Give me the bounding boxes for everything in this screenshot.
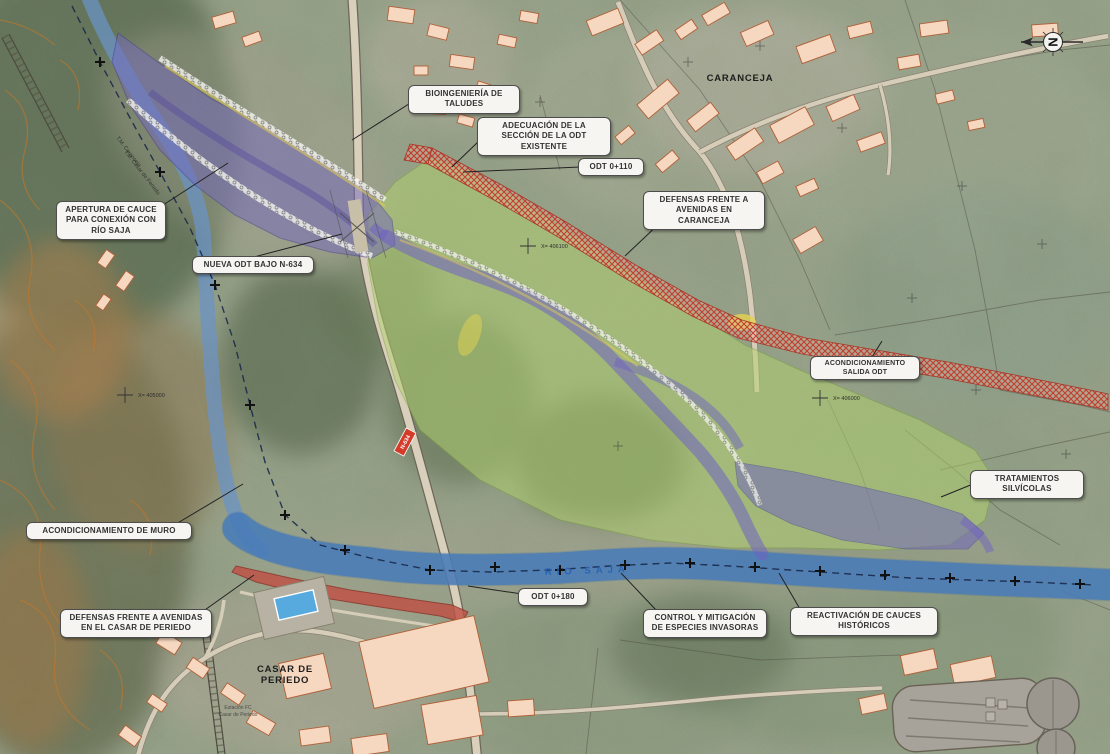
- project-map: X= 405000 X= 406100 X= 406000 T.M. Caran…: [0, 0, 1110, 754]
- callout-reactivacion-cauces: REACTIVACIÓN DE CAUCES HISTÓRICOS: [790, 607, 938, 636]
- callout-nueva-odt-n634: NUEVA ODT BAJO N-634: [192, 256, 314, 274]
- callout-adecuacion-seccion-odt: ADECUACIÓN DE LA SECCIÓN DE LA ODT EXIST…: [477, 117, 611, 156]
- treatment-plant: [891, 677, 1079, 754]
- callout-odt-0-110: ODT 0+110: [578, 158, 644, 176]
- callout-defensas-caranceja: DEFENSAS FRENTE A AVENIDAS EN CARANCEJA: [643, 191, 765, 230]
- grid-label-x3: X= 406000: [833, 396, 860, 402]
- svg-text:N: N: [1046, 37, 1061, 46]
- callout-tratamientos-silvicolas: TRATAMIENTOS SILVÍCOLAS: [970, 470, 1084, 499]
- grid-label-x2: X= 406100: [541, 244, 568, 250]
- callout-defensas-casar-periedo: DEFENSAS FRENTE A AVENIDAS EN EL CASAR D…: [60, 609, 212, 638]
- aerial-basemap: X= 405000 X= 406100 X= 406000 T.M. Caran…: [0, 0, 1110, 754]
- callout-bioingenieria-taludes: BIOINGENIERÍA DE TALUDES: [408, 85, 520, 114]
- callout-acondicionamiento-muro: ACONDICIONAMIENTO DE MURO: [26, 522, 192, 540]
- callout-apertura-cauce: APERTURA DE CAUCE PARA CONEXIÓN CON RÍO …: [56, 201, 166, 240]
- town-label-caranceja: CARANCEJA: [695, 73, 785, 84]
- station-label-line2: Casar de Periedo: [205, 712, 271, 719]
- callout-odt-0-180: ODT 0+180: [518, 588, 588, 606]
- callout-acondicionamiento-salida-odt: ACONDICIONAMIENTO SALIDA ODT: [810, 356, 920, 380]
- callout-control-especies-invasoras: CONTROL Y MITIGACIÓN DE ESPECIES INVASOR…: [643, 609, 767, 638]
- grid-label-x1: X= 405000: [138, 393, 165, 399]
- town-label-casar-line1: CASAR DE: [240, 664, 330, 675]
- town-label-casar-line2: PERIEDO: [240, 675, 330, 686]
